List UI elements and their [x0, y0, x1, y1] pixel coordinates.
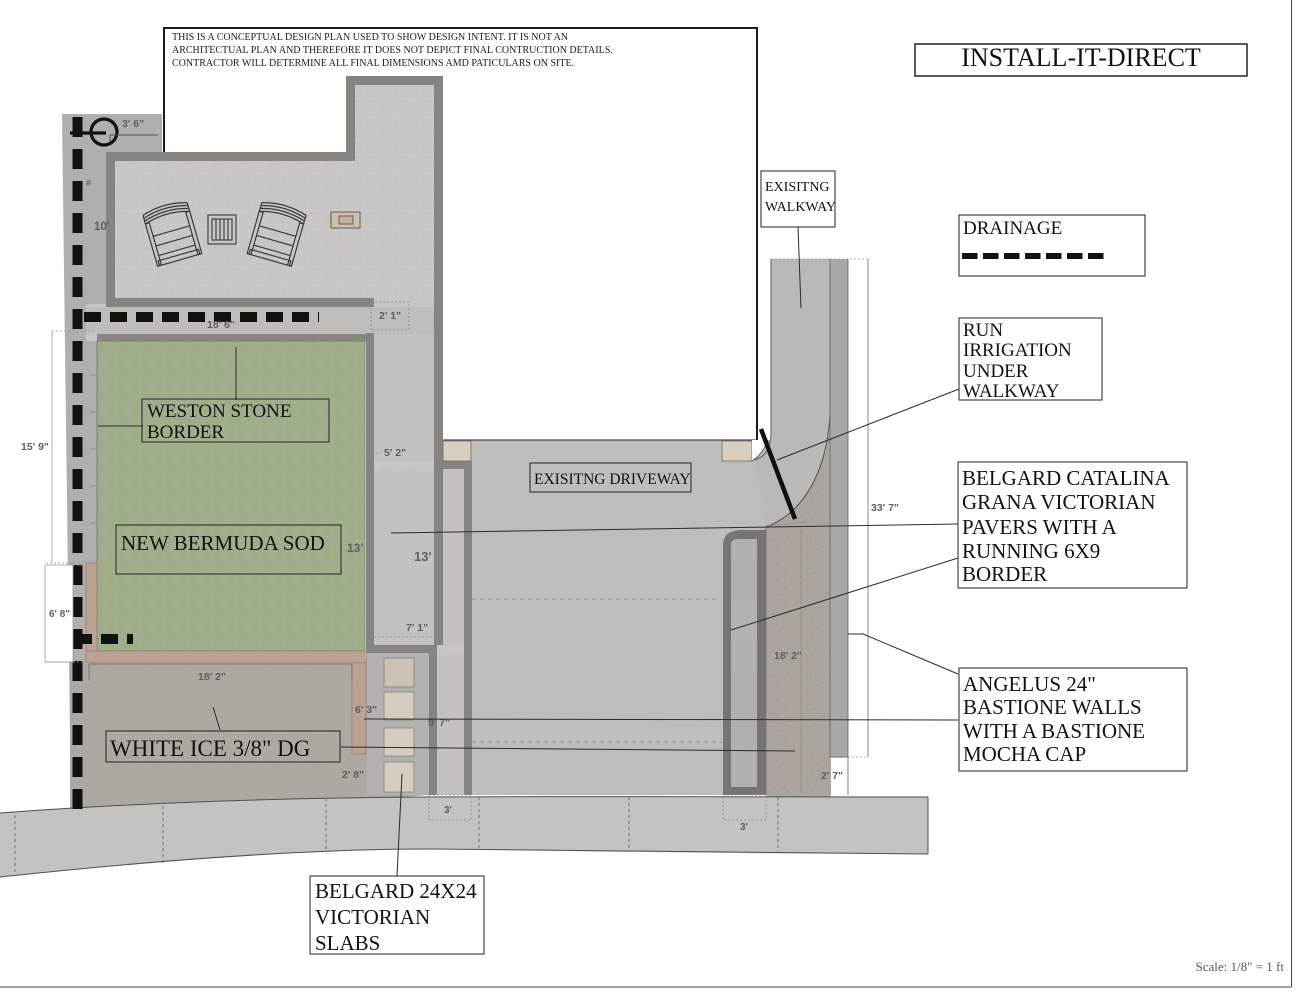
svg-text:SLABS: SLABS — [315, 931, 380, 955]
svg-text:BASTIONE WALLS: BASTIONE WALLS — [963, 695, 1142, 719]
svg-text:BELGARD 24X24: BELGARD 24X24 — [315, 879, 477, 903]
svg-text:6' 8": 6' 8" — [49, 609, 70, 620]
svg-text:2' 7": 2' 7" — [821, 770, 843, 782]
svg-text:MOCHA CAP: MOCHA CAP — [963, 742, 1086, 766]
svg-text:VICTORIAN: VICTORIAN — [315, 905, 430, 929]
svg-text:THIS IS A CONCEPTUAL DESIGN PL: THIS IS A CONCEPTUAL DESIGN PLAN USED TO… — [172, 32, 568, 43]
svg-text:ANGELUS 24": ANGELUS 24" — [963, 672, 1096, 696]
svg-text:13': 13' — [414, 549, 432, 564]
svg-text:5' 2": 5' 2" — [384, 447, 406, 459]
svg-text:CONTRACTOR WILL DETERMINE ALL: CONTRACTOR WILL DETERMINE ALL FINAL DIME… — [172, 58, 574, 69]
svg-text:EXISITNG DRIVEWAY: EXISITNG DRIVEWAY — [534, 471, 691, 488]
svg-text:EXISITNG: EXISITNG — [765, 180, 830, 195]
svg-text:7' 1": 7' 1" — [406, 622, 428, 634]
svg-text:2' 1": 2' 1" — [379, 310, 401, 322]
svg-text:RUN: RUN — [963, 320, 1003, 341]
svg-text:WITH A BASTIONE: WITH A BASTIONE — [963, 719, 1145, 743]
svg-text:DRAINAGE: DRAINAGE — [963, 218, 1062, 239]
svg-text:WHITE ICE 3/8" DG: WHITE ICE 3/8" DG — [110, 736, 310, 761]
svg-text:6' 3": 6' 3" — [355, 704, 377, 716]
svg-text:#: # — [86, 178, 91, 188]
svg-text:18' 2": 18' 2" — [774, 650, 802, 662]
svg-text:INSTALL-IT-DIRECT: INSTALL-IT-DIRECT — [961, 43, 1201, 72]
svg-text:RUNNING 6X9: RUNNING 6X9 — [962, 539, 1100, 563]
svg-text:Scale: 1/8" = 1 ft: Scale: 1/8" = 1 ft — [1196, 959, 1285, 974]
svg-text:15' 9": 15' 9" — [21, 441, 49, 453]
svg-text:13': 13' — [347, 541, 363, 555]
svg-text:BORDER: BORDER — [962, 562, 1047, 586]
svg-text:33' 7": 33' 7" — [871, 502, 899, 514]
svg-text:3': 3' — [444, 805, 452, 816]
svg-text:BORDER: BORDER — [147, 422, 224, 443]
svg-text:BELGARD CATALINA: BELGARD CATALINA — [962, 466, 1171, 490]
svg-text:WALKWAY: WALKWAY — [963, 381, 1060, 402]
svg-text:GRANA VICTORIAN: GRANA VICTORIAN — [962, 490, 1156, 514]
svg-text:3' 6": 3' 6" — [122, 118, 144, 130]
svg-text:WALKWAY: WALKWAY — [765, 200, 836, 215]
svg-text:10': 10' — [94, 221, 110, 233]
svg-text:2' 8": 2' 8" — [342, 769, 364, 781]
svg-text:UNDER: UNDER — [963, 361, 1029, 382]
svg-text:IRRIGATION: IRRIGATION — [963, 340, 1072, 361]
svg-text:ARCHITECTUAL PLAN AND THEREFOR: ARCHITECTUAL PLAN AND THEREFORE IT DOES … — [172, 45, 613, 56]
svg-text:18' 2": 18' 2" — [198, 671, 226, 683]
svg-text:PAVERS WITH A: PAVERS WITH A — [962, 515, 1118, 539]
svg-text:3': 3' — [740, 822, 748, 833]
svg-text:WESTON STONE: WESTON STONE — [147, 401, 291, 422]
svg-text:18' 6": 18' 6" — [207, 319, 235, 331]
svg-text:NEW BERMUDA SOD: NEW BERMUDA SOD — [121, 531, 325, 555]
